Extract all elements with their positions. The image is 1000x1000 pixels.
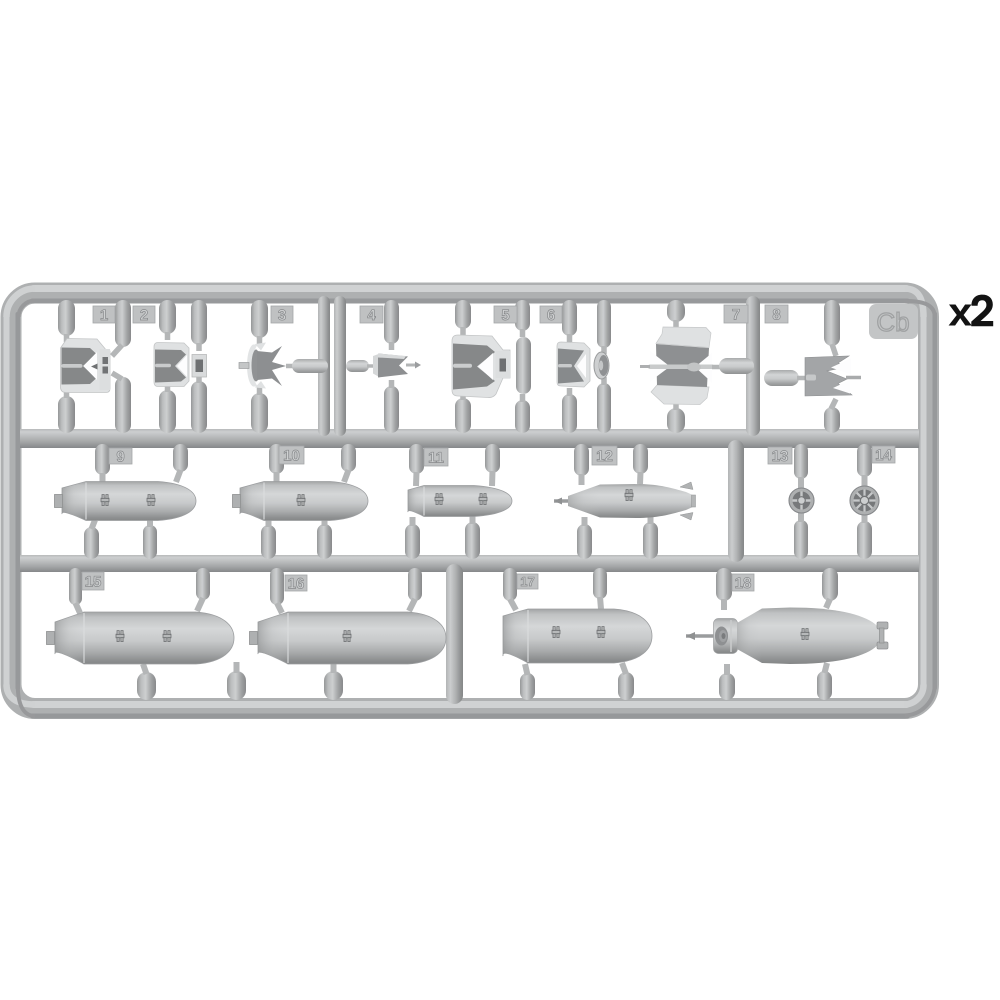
svg-text:8: 8 [772,306,780,323]
svg-text:3: 3 [278,307,286,324]
svg-text:Cb: Cb [876,307,909,337]
svg-text:4: 4 [367,307,376,324]
svg-text:14: 14 [875,447,892,464]
svg-text:10: 10 [283,447,300,464]
svg-text:16: 16 [288,575,305,592]
svg-text:12: 12 [596,448,613,465]
svg-text:5: 5 [501,307,509,324]
svg-text:2: 2 [140,307,148,324]
svg-text:15: 15 [85,573,102,590]
svg-text:1: 1 [100,307,108,324]
svg-text:9: 9 [116,448,124,465]
svg-text:7: 7 [732,306,740,323]
svg-text:17: 17 [520,574,534,589]
svg-text:13: 13 [772,448,789,465]
svg-text:18: 18 [735,575,752,592]
svg-text:6: 6 [547,307,555,324]
svg-text:11: 11 [428,449,444,466]
